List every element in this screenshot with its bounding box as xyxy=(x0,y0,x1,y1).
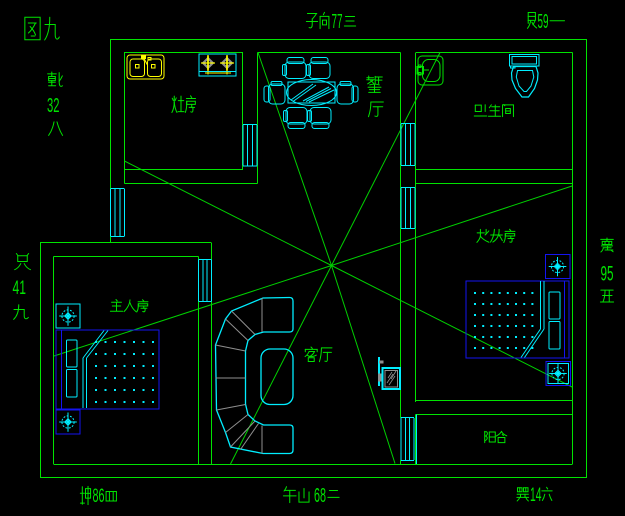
svg-text:77: 77 xyxy=(332,11,343,33)
svg-text:32: 32 xyxy=(47,95,60,117)
svg-text:41: 41 xyxy=(13,278,27,299)
svg-text:59: 59 xyxy=(538,11,549,33)
svg-text:68: 68 xyxy=(314,485,326,507)
svg-text:86: 86 xyxy=(93,486,105,507)
svg-text:14: 14 xyxy=(530,485,542,506)
svg-text:95: 95 xyxy=(601,263,614,286)
